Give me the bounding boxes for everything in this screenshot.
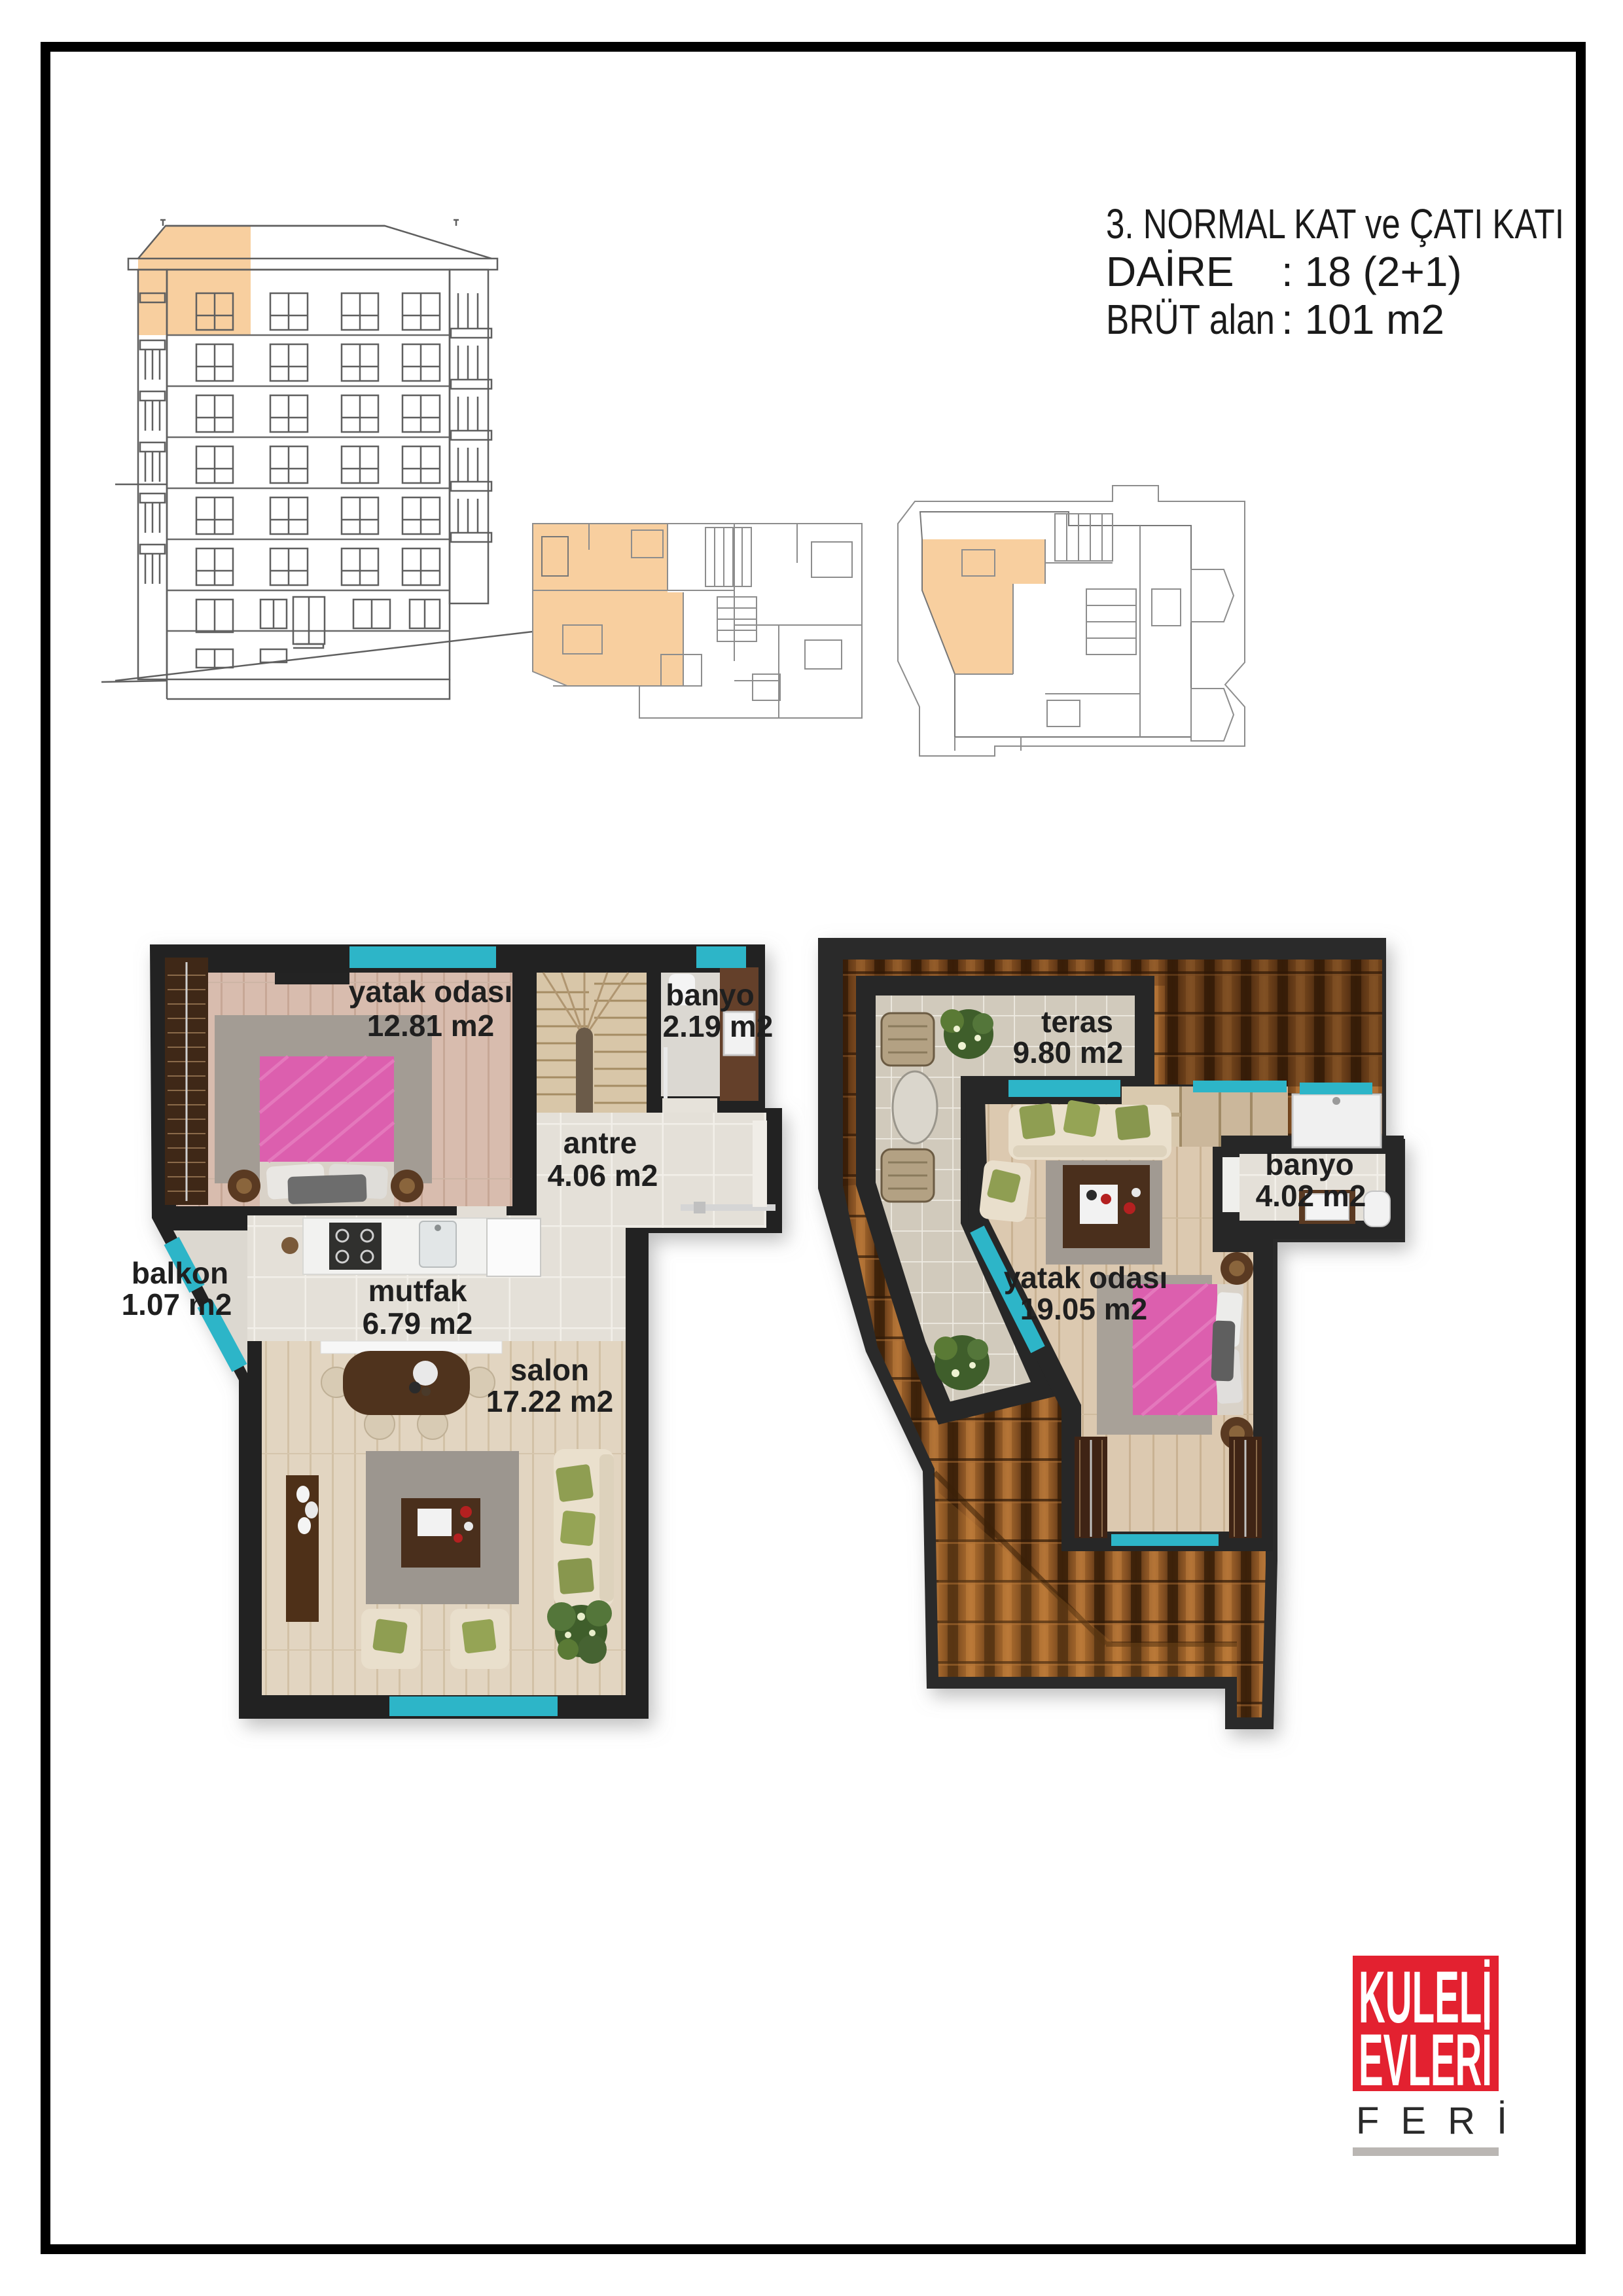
svg-text:2.19 m2: 2.19 m2 (663, 1009, 774, 1043)
svg-text:17.22 m2: 17.22 m2 (486, 1384, 613, 1418)
svg-text:6.79 m2: 6.79 m2 (363, 1306, 473, 1340)
svg-text:banyo: banyo (1265, 1147, 1353, 1181)
svg-text:12.81 m2: 12.81 m2 (367, 1009, 494, 1043)
svg-text:mutfak: mutfak (368, 1274, 467, 1308)
svg-text:yatak odası: yatak odası (1004, 1261, 1168, 1295)
svg-text:yatak odası: yatak odası (349, 975, 513, 1009)
svg-text:1.07 m2: 1.07 m2 (122, 1287, 232, 1321)
svg-text:19.05 m2: 19.05 m2 (1020, 1292, 1147, 1326)
svg-text:FERİ: FERİ (1356, 2100, 1529, 2142)
svg-text:DAİRE: DAİRE (1106, 248, 1234, 295)
svg-text:4.02 m2: 4.02 m2 (1256, 1179, 1366, 1213)
svg-text:9.80 m2: 9.80 m2 (1013, 1035, 1124, 1069)
svg-text:balkon: balkon (132, 1256, 228, 1290)
svg-text:salon: salon (510, 1353, 589, 1387)
svg-text:antre: antre (563, 1126, 637, 1160)
svg-text:EVLERİ: EVLERİ (1359, 2019, 1492, 2101)
svg-text:3. NORMAL KAT ve ÇATI KATI: 3. NORMAL KAT ve ÇATI KATI (1106, 200, 1564, 247)
svg-text:BRÜT alan: BRÜT alan (1106, 296, 1275, 343)
svg-text:: 18 (2+1): : 18 (2+1) (1281, 248, 1462, 295)
svg-text:banyo: banyo (666, 978, 754, 1012)
svg-text:4.06 m2: 4.06 m2 (548, 1158, 658, 1193)
svg-text:teras: teras (1041, 1005, 1113, 1039)
svg-text:: 101 m2: : 101 m2 (1281, 296, 1444, 343)
